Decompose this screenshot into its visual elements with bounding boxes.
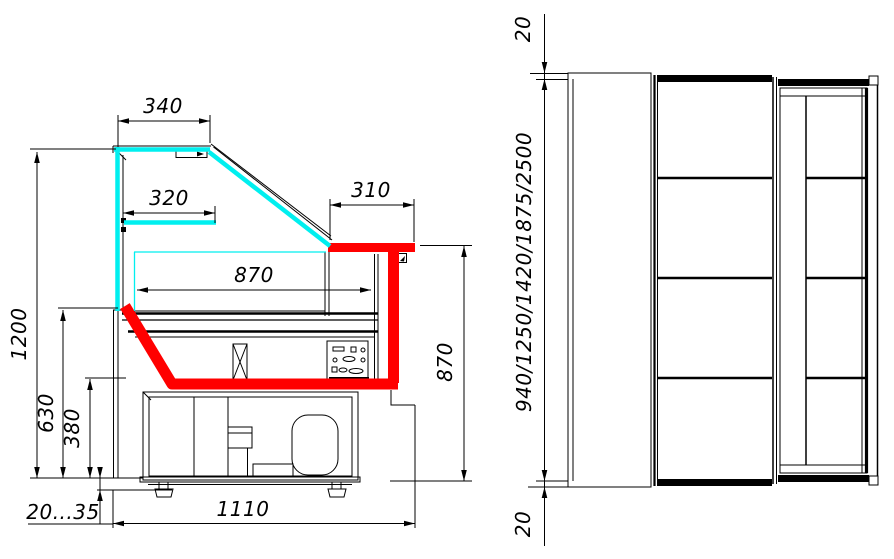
slanted-frame-inner <box>214 147 333 240</box>
dim-end-overhang-bottom: 20 <box>511 511 535 537</box>
dim-label-leg-adjustment: 20...35 <box>26 500 99 524</box>
dim-rear-height: 870 <box>390 246 472 482</box>
display-liner-outline <box>134 252 326 311</box>
dim-label-rear-top-depth: 310 <box>351 178 391 202</box>
display-edge-band-top <box>658 75 772 82</box>
plan-body <box>568 73 878 487</box>
side-section-view: 340 320 310 870 <box>7 94 472 528</box>
slanted-glass-panel <box>209 152 330 246</box>
slanted-frame-outer <box>211 144 331 236</box>
machine-compartment <box>140 390 415 528</box>
dim-label-base-height: 380 <box>60 408 84 448</box>
drain-tray <box>253 464 293 476</box>
display-dividers <box>658 178 772 378</box>
dim-overall-depth: 1110 <box>113 490 415 528</box>
compressor <box>292 415 338 475</box>
dim-rear-top-depth: 310 <box>330 178 414 242</box>
control-panel <box>327 341 369 383</box>
canopy-structure <box>113 144 332 311</box>
electrical-box <box>228 427 252 448</box>
air-duct <box>194 397 228 476</box>
dim-label-end-overhang-bottom: 20 <box>511 511 535 537</box>
door-rail-top <box>780 88 867 96</box>
dim-label-rear-height: 870 <box>433 342 457 382</box>
plan-view-dimensions: 20 940/1250/1420/1875/2500 20 <box>511 14 568 546</box>
lamp-arrow-mark <box>197 152 204 157</box>
canopy-outline <box>568 73 651 487</box>
door-rail-bottom <box>780 465 867 473</box>
dim-canopy-width: 340 <box>118 94 210 147</box>
sliding-doors <box>780 88 862 473</box>
display-edge-band-bottom <box>658 479 772 486</box>
dim-label-display-depth: 870 <box>234 263 274 287</box>
display-case-drawing: 340 320 310 870 <box>0 0 894 559</box>
dim-base-height: 380 <box>60 378 126 478</box>
dim-label-front-glass-height: 630 <box>34 393 58 433</box>
rear-air-grille <box>325 252 329 316</box>
front-lower-panel <box>113 310 123 478</box>
dim-available-lengths: 940/1250/1420/1875/2500 <box>512 132 547 498</box>
shelf-bracket-mark <box>121 227 126 232</box>
dim-label-overall-height: 1200 <box>7 308 31 361</box>
plan-view: 20 940/1250/1420/1875/2500 20 <box>511 14 878 546</box>
dim-label-canopy-width: 340 <box>143 94 183 118</box>
dim-label-overall-depth: 1110 <box>217 497 270 521</box>
dim-display-depth: 870 <box>137 263 371 293</box>
technical-drawing-page: 340 320 310 870 <box>0 0 894 559</box>
dim-front-glass-height: 630 <box>34 308 118 478</box>
dim-label-shelf-width: 320 <box>149 186 189 210</box>
dim-end-overhang-top: 20 <box>511 16 547 90</box>
counter-body <box>113 218 407 478</box>
dim-label-available-lengths: 940/1250/1420/1875/2500 <box>512 132 536 412</box>
corner-block-top <box>869 76 878 85</box>
rear-wall <box>375 254 379 388</box>
crosshatch-section <box>233 344 247 380</box>
glass-panels <box>114 147 330 311</box>
corner-block-bottom <box>869 476 878 485</box>
dim-shelf-width: 320 <box>123 186 215 223</box>
rear-base-step <box>391 390 415 528</box>
door-dividers <box>806 178 866 378</box>
dim-label-end-overhang-top: 20 <box>511 16 535 42</box>
